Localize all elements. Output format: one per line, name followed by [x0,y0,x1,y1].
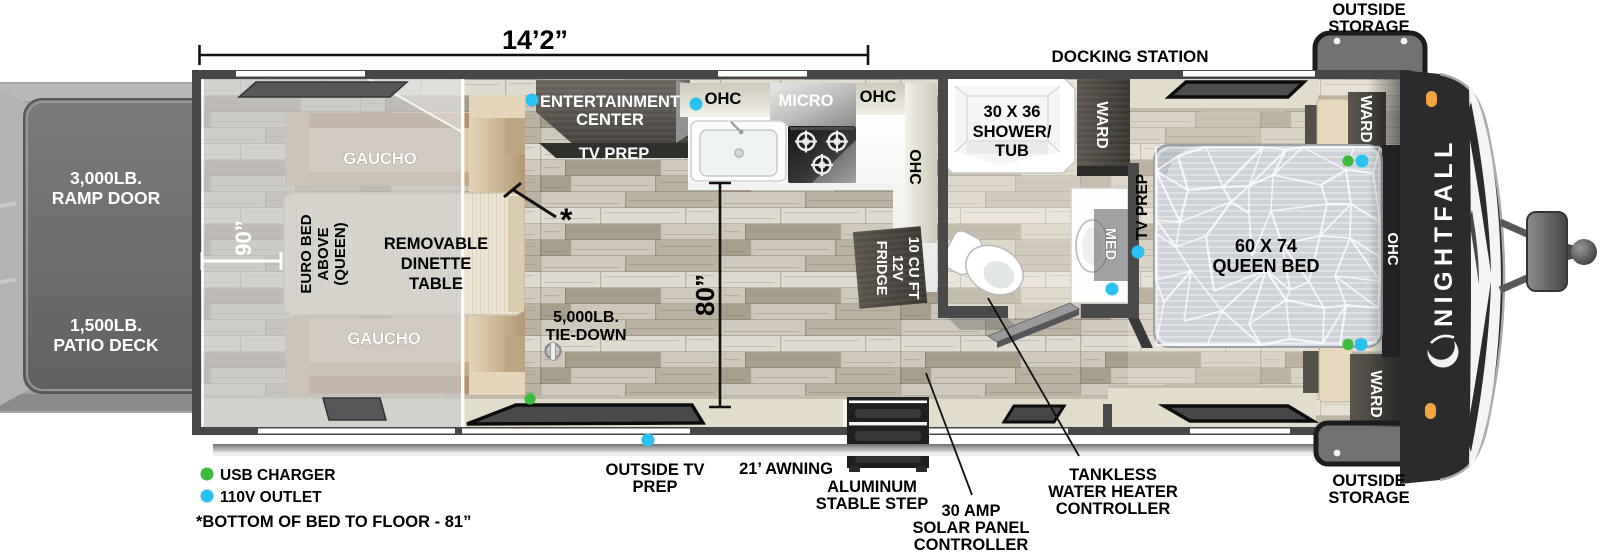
svg-text:OHC: OHC [705,90,742,108]
svg-text:ABOVE: ABOVE [315,227,332,280]
svg-text:STORAGE: STORAGE [1328,18,1409,36]
svg-text:TV PREP: TV PREP [579,145,650,163]
svg-text:(QUEEN): (QUEEN) [332,222,349,285]
svg-text:DINETTE: DINETTE [401,255,472,273]
svg-text:CONTROLLER: CONTROLLER [914,536,1029,554]
svg-text:12V: 12V [889,255,905,281]
svg-text:1,500LB.: 1,500LB. [70,315,142,335]
svg-text:3,000LB.: 3,000LB. [70,168,142,188]
svg-text:ENTERTAINMENT: ENTERTAINMENT [540,93,680,111]
svg-text:REMOVABLE: REMOVABLE [384,235,488,253]
svg-text:OHC: OHC [860,88,897,106]
svg-text:TUB: TUB [995,142,1029,160]
svg-text:TIE-DOWN: TIE-DOWN [546,327,627,344]
svg-text:*: * [560,202,573,238]
svg-text:SHOWER/: SHOWER/ [973,123,1052,141]
svg-text:OUTSIDE: OUTSIDE [1332,472,1405,490]
svg-text:NIGHTFALL: NIGHTFALL [1430,137,1458,327]
svg-text:OUTSIDE TV: OUTSIDE TV [605,461,704,479]
svg-text:USB CHARGER: USB CHARGER [220,467,335,484]
svg-text:WARD: WARD [1367,370,1384,417]
svg-text:RAMP DOOR: RAMP DOOR [52,188,161,208]
svg-text:TV PREP: TV PREP [1134,174,1151,240]
svg-text:110V OUTLET: 110V OUTLET [220,489,322,506]
svg-text:GAUCHO: GAUCHO [347,330,420,348]
svg-text:TABLE: TABLE [409,275,463,293]
svg-text:DOCKING STATION: DOCKING STATION [1051,47,1208,66]
svg-text:5,000LB.: 5,000LB. [553,309,619,326]
svg-text:MICRO: MICRO [779,92,834,110]
svg-text:QUEEN BED: QUEEN BED [1212,256,1319,276]
svg-text:90”: 90” [231,220,256,255]
svg-text:OHC: OHC [906,149,923,185]
svg-text:TANKLESS: TANKLESS [1069,466,1157,484]
svg-text:MED: MED [1102,228,1118,260]
svg-text:10 CU FT: 10 CU FT [905,237,921,300]
svg-text:*BOTTOM OF BED TO FLOOR - 81”: *BOTTOM OF BED TO FLOOR - 81” [196,513,471,531]
svg-text:WARD: WARD [1357,95,1374,142]
svg-text:SOLAR PANEL: SOLAR PANEL [912,519,1029,537]
svg-text:CONTROLLER: CONTROLLER [1056,500,1171,518]
svg-text:STORAGE: STORAGE [1328,489,1409,507]
svg-text:EURO BED: EURO BED [298,214,315,293]
svg-text:PATIO DECK: PATIO DECK [53,335,159,355]
svg-text:STABLE STEP: STABLE STEP [816,495,928,513]
svg-text:FRIDGE: FRIDGE [873,241,889,296]
svg-text:OUTSIDE: OUTSIDE [1332,1,1405,19]
svg-text:GAUCHO: GAUCHO [343,150,416,168]
svg-text:WATER HEATER: WATER HEATER [1048,483,1178,501]
svg-text:21’ AWNING: 21’ AWNING [739,460,833,478]
svg-text:80”: 80” [690,274,720,316]
svg-text:PREP: PREP [633,478,678,496]
svg-text:WARD: WARD [1093,101,1110,148]
svg-text:60 X 74: 60 X 74 [1235,236,1297,256]
svg-text:30 X 36: 30 X 36 [984,103,1041,121]
svg-text:OHC: OHC [1384,232,1401,266]
svg-text:14’2”: 14’2” [502,25,568,55]
svg-text:30 AMP: 30 AMP [942,502,1001,520]
svg-text:CENTER: CENTER [576,111,644,129]
svg-text:ALUMINUM: ALUMINUM [827,478,917,496]
